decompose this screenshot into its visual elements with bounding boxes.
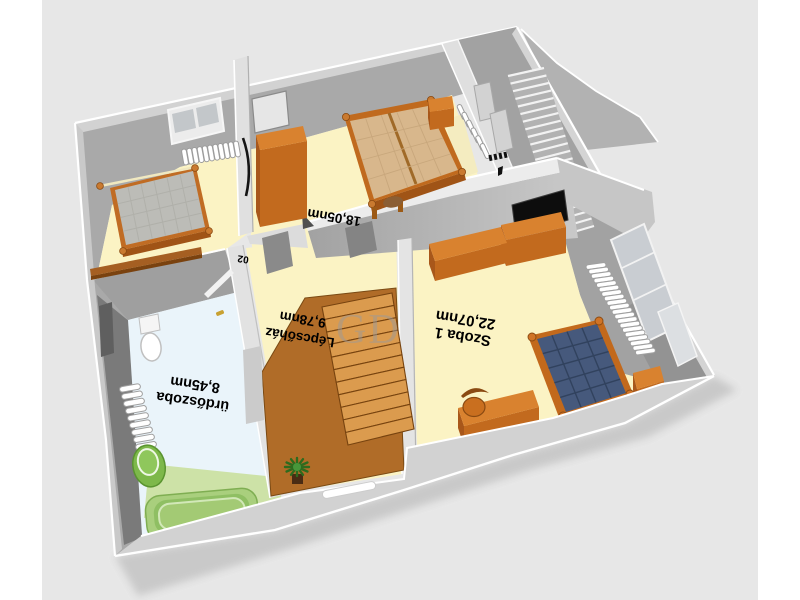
svg-text:02: 02 bbox=[237, 252, 250, 265]
svg-text:GD: GD bbox=[336, 307, 401, 353]
